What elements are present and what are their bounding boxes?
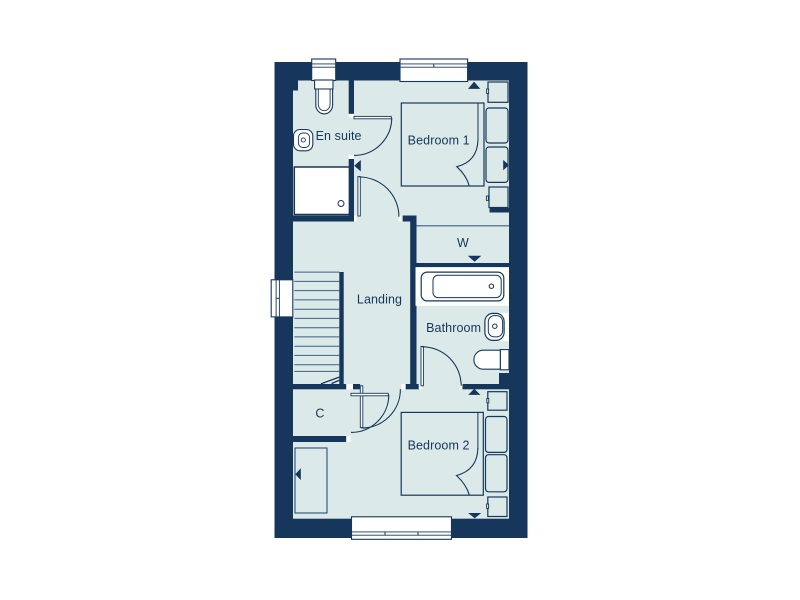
svg-text:En suite: En suite: [316, 129, 362, 143]
svg-text:Landing: Landing: [357, 292, 402, 306]
svg-text:W: W: [457, 236, 469, 250]
svg-text:Bathroom: Bathroom: [426, 321, 481, 335]
svg-text:Bedroom 2: Bedroom 2: [408, 439, 470, 453]
svg-text:Bedroom 1: Bedroom 1: [408, 133, 470, 147]
svg-text:C: C: [315, 407, 324, 421]
